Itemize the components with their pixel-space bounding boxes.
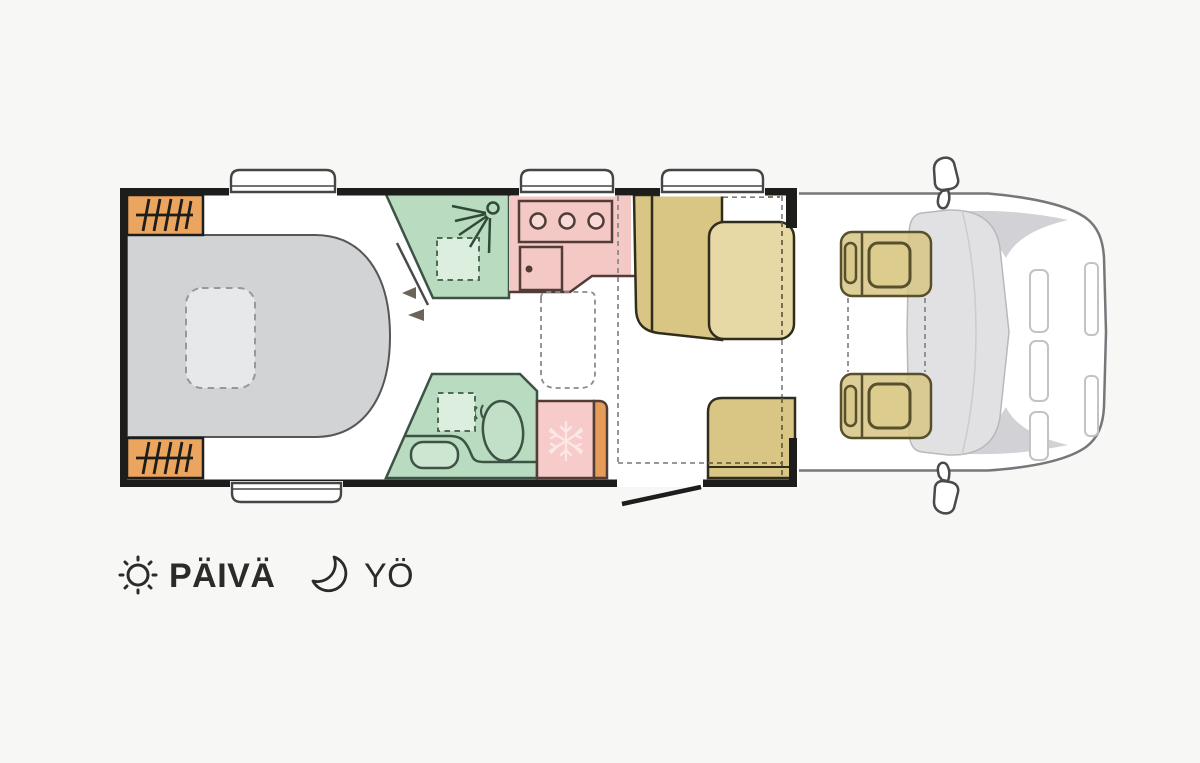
svg-text:YÖ: YÖ: [364, 557, 414, 595]
svg-text:PÄIVÄ: PÄIVÄ: [169, 557, 275, 595]
